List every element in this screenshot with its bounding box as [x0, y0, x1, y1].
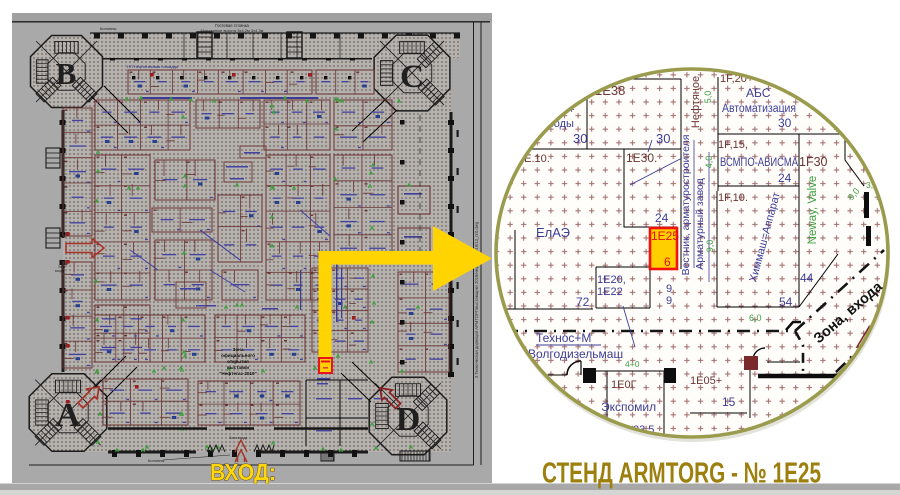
- svg-text:1F,10.: 1F,10.: [718, 192, 748, 204]
- svg-text:30: 30: [656, 131, 670, 146]
- svg-text:Экспомил: Экспомил: [601, 400, 656, 414]
- svg-text:6: 6: [664, 255, 671, 269]
- svg-text:3.Техническая дирекция АРМТОРГ: 3.Техническая дирекция АРМТОРГ/выставщик…: [474, 221, 479, 378]
- svg-text:Автоматизация: Автоматизация: [722, 103, 796, 115]
- svg-text:входа: входа: [55, 269, 64, 273]
- svg-text:Колонны: Колонны: [100, 26, 116, 31]
- svg-text:30: 30: [778, 116, 792, 130]
- svg-text:54: 54: [779, 295, 793, 309]
- svg-text:Волгодизельмаш: Волгодизельмаш: [528, 347, 623, 361]
- svg-text:СТЕНД ARMTORG - № 1Е25: СТЕНД ARMTORG - № 1Е25: [542, 458, 821, 490]
- svg-text:1Е25: 1Е25: [651, 229, 679, 243]
- svg-text:6,0: 6,0: [749, 313, 762, 323]
- svg-text:ЕлАЭ: ЕлАЭ: [536, 225, 570, 240]
- svg-text:1F30: 1F30: [799, 155, 828, 169]
- svg-text:Колонны: Колонны: [148, 458, 164, 463]
- svg-text:B: B: [56, 56, 77, 91]
- svg-text:Нефтяное: Нефтяное: [690, 76, 702, 128]
- svg-text:Арматурный завод: Арматурный завод: [694, 178, 706, 270]
- svg-text:15: 15: [722, 395, 736, 409]
- svg-text:1F,15,: 1F,15,: [718, 139, 748, 151]
- svg-text:Neway, Valve: Neway, Valve: [807, 176, 819, 245]
- svg-text:Зона: Зона: [232, 347, 243, 352]
- svg-text:"Нефтегаз-2019": "Нефтегаз-2019": [219, 370, 257, 376]
- svg-text:D: D: [396, 401, 421, 438]
- svg-text:72: 72: [576, 295, 590, 309]
- svg-text:9: 9: [666, 295, 672, 307]
- svg-text:24: 24: [778, 171, 792, 185]
- svg-text:ВСМПО-АВИСМА: ВСМПО-АВИСМА: [720, 157, 798, 169]
- svg-text:5,0: 5,0: [703, 91, 713, 104]
- svg-text:C: C: [400, 59, 424, 95]
- svg-text:Технос+М: Технос+М: [536, 331, 591, 345]
- svg-text:АБС: АБС: [746, 86, 771, 100]
- svg-text:1Е22: 1Е22: [597, 286, 623, 298]
- svg-text:Зона входа: Зона входа: [229, 436, 247, 440]
- svg-text:1Е05+: 1Е05+: [690, 375, 722, 387]
- svg-text:1Е0Г: 1Е0Г: [611, 379, 637, 391]
- svg-text:4,0: 4,0: [704, 156, 714, 169]
- svg-text:Монтажные ворота 3х4,2м 3х4,3м: Монтажные ворота 3х4,2м 3х4,3м: [201, 28, 264, 33]
- svg-text:Вестник, арматуростроителя: Вестник, арматуростроителя: [680, 135, 692, 276]
- svg-text:официального: официального: [221, 352, 255, 358]
- svg-text:9: 9: [666, 283, 672, 295]
- svg-text:4+0: 4+0: [625, 359, 640, 369]
- svg-text:44: 44: [800, 271, 814, 285]
- svg-text:9,0: 9,0: [705, 240, 715, 253]
- svg-text:ВХОД:: ВХОД:: [210, 459, 276, 485]
- svg-text:30: 30: [573, 131, 587, 146]
- svg-text:НП Нефтегазовая площадь: НП Нефтегазовая площадь: [127, 64, 178, 69]
- svg-text:выставки: выставки: [227, 365, 249, 370]
- svg-text:открытия: открытия: [227, 359, 249, 364]
- svg-text:1Е30.: 1Е30.: [626, 151, 657, 165]
- svg-text:24: 24: [655, 211, 669, 225]
- svg-text:1Е20,: 1Е20,: [597, 274, 626, 286]
